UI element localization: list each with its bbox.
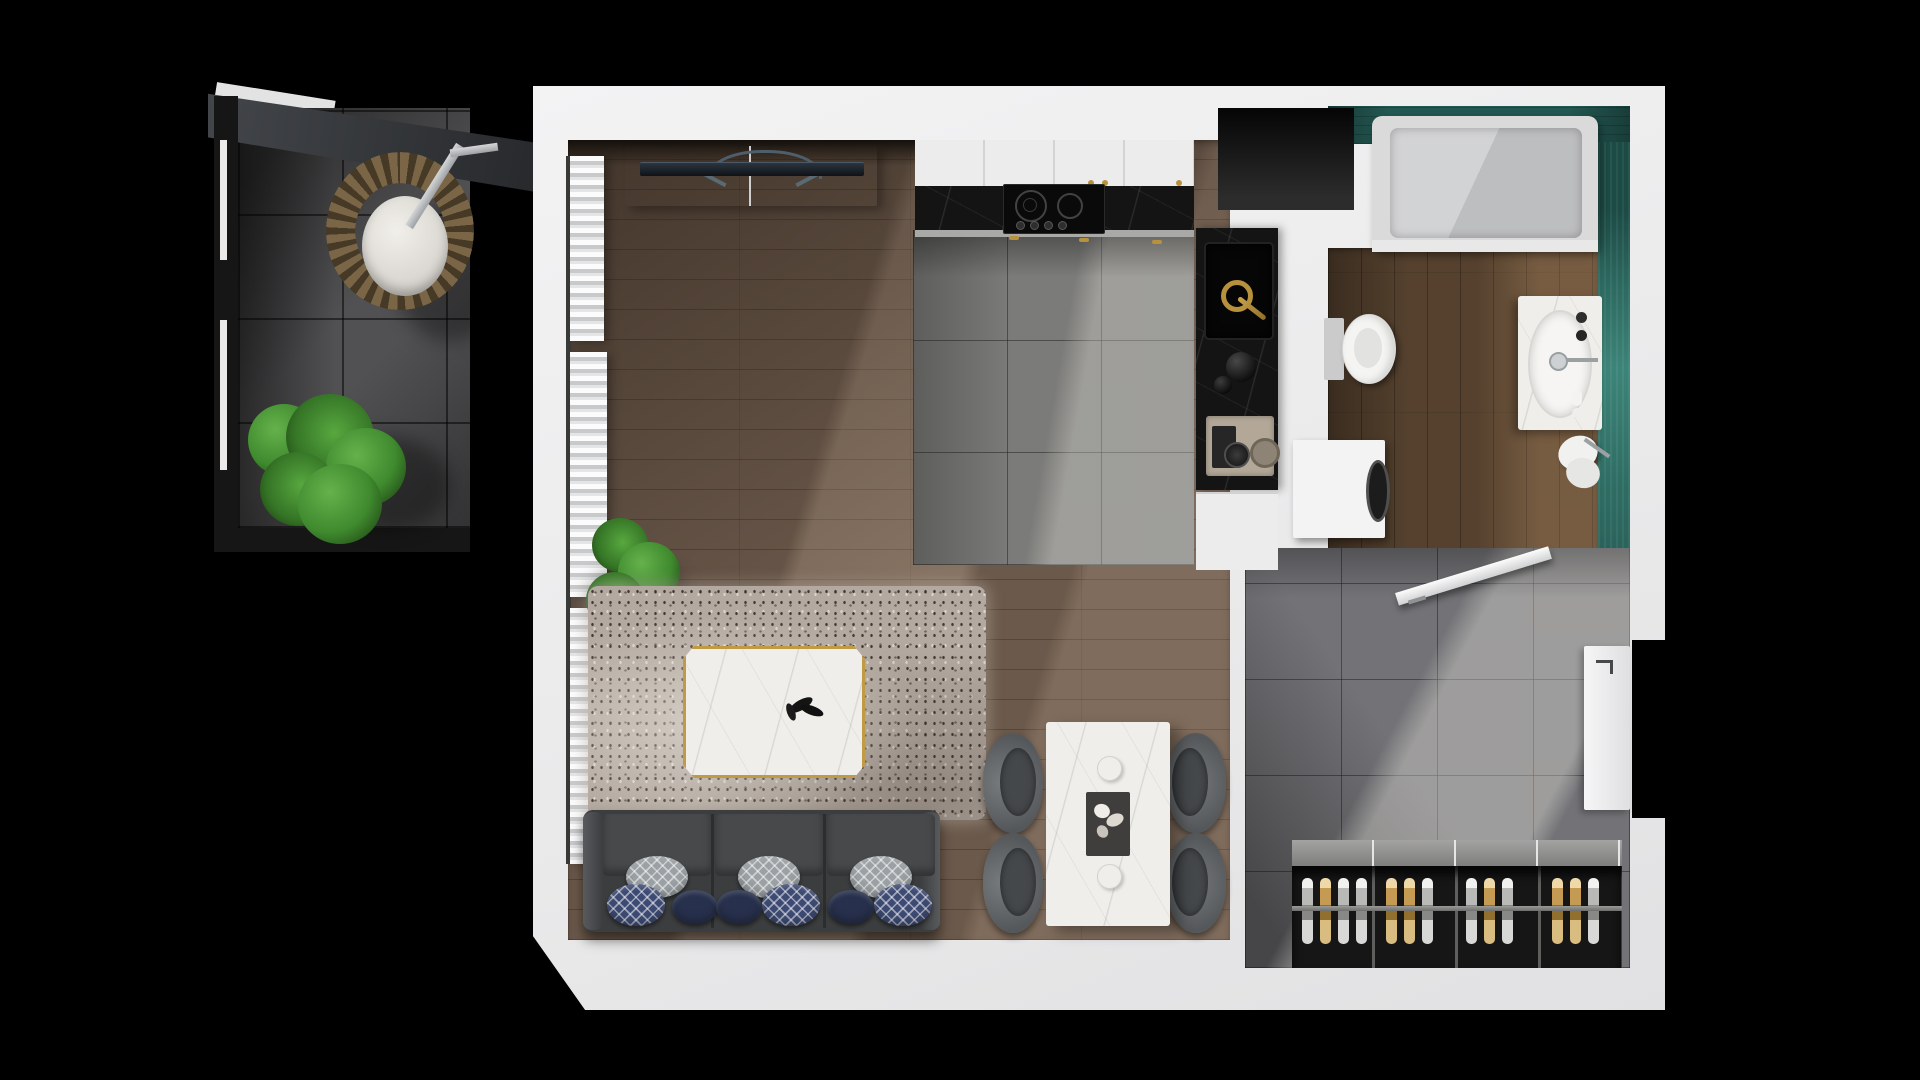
bathroom-teal-floor-strip (1598, 142, 1630, 554)
wine-bottle (1570, 878, 1581, 944)
kitchen-tile-floor (913, 230, 1194, 565)
wine-bottle (1356, 878, 1367, 944)
storage-alcove (1218, 108, 1354, 210)
wine-bottle (1422, 878, 1433, 944)
hanging-chair-cushion (362, 196, 448, 296)
wine-bottle (1484, 878, 1495, 944)
floor-plan-render (0, 0, 1920, 1080)
wine-bottle (1466, 878, 1477, 944)
bathtub-basin (1390, 128, 1582, 238)
wine-bottle (1404, 878, 1415, 944)
curtains-upper (570, 156, 604, 341)
under-sink-cabinet (1196, 492, 1278, 570)
counter-gold-handle (1079, 238, 1089, 242)
kitchen-upper-cabinets (915, 140, 1194, 190)
wine-bottle (1338, 878, 1349, 944)
pillow-navy-lattice (762, 884, 820, 926)
pillow-navy-solid (672, 890, 718, 924)
wine-bottle (1552, 878, 1563, 944)
pillow-navy-solid (716, 890, 762, 924)
dinner-plate (1097, 756, 1122, 781)
dining-chair-seat (1172, 848, 1208, 916)
wine-bottle (1588, 878, 1599, 944)
sofa-seat-divider (823, 814, 826, 928)
coffee-table (683, 646, 865, 778)
balcony-glass-pane (220, 140, 227, 260)
counter-gold-handle (1152, 240, 1162, 244)
cooktop-knob (1058, 221, 1067, 230)
room-balcony (214, 76, 470, 566)
dining-chair-seat (1000, 848, 1036, 916)
cooktop-burner-large-inner (1023, 198, 1037, 212)
bathtub-ledge (1372, 240, 1598, 252)
sofa-armrest-left (583, 812, 603, 930)
pillow-navy-lattice (874, 884, 932, 926)
tv-screen (640, 162, 864, 176)
vanity-cup (1572, 390, 1582, 406)
wine-bottle (1320, 878, 1331, 944)
pillow-navy-solid (828, 890, 874, 924)
cooktop-knob (1016, 221, 1025, 230)
cooktop-knob (1030, 221, 1039, 230)
toilet-bowl-inner (1354, 328, 1382, 368)
kettle (1226, 352, 1256, 382)
wine-bottle (1302, 878, 1313, 944)
wine-rack-rail (1292, 906, 1622, 911)
coffee-machine-knob (1224, 442, 1250, 468)
pillow-navy-lattice (607, 884, 665, 926)
wine-bottle (1386, 878, 1397, 944)
vanity-soap-item (1576, 330, 1587, 341)
vanity-cup (1572, 408, 1582, 418)
entry-doorway-gap (1632, 640, 1665, 818)
toilet-tank (1324, 318, 1344, 380)
dining-chair-seat (1172, 748, 1208, 816)
entry-door (1584, 646, 1630, 810)
kettle-lid (1214, 376, 1232, 394)
counter-gold-handle (1009, 236, 1019, 240)
dinner-plate (1097, 864, 1122, 889)
cooktop-knob (1044, 221, 1053, 230)
balcony-glass-pane (220, 320, 227, 470)
potted-plant-foliage (298, 464, 382, 544)
cooktop-burner-small (1057, 193, 1083, 219)
entry-door-handle (1610, 660, 1613, 674)
vanity-drain (1549, 352, 1568, 371)
entry-door-handle (1596, 660, 1610, 663)
vanity-soap-item (1576, 312, 1587, 323)
wine-rack-lid (1292, 840, 1622, 866)
dining-chair-seat (1000, 748, 1036, 816)
coffee-machine-disc (1250, 438, 1280, 468)
wine-bottle (1502, 878, 1513, 944)
washing-machine-drum (1366, 460, 1390, 522)
